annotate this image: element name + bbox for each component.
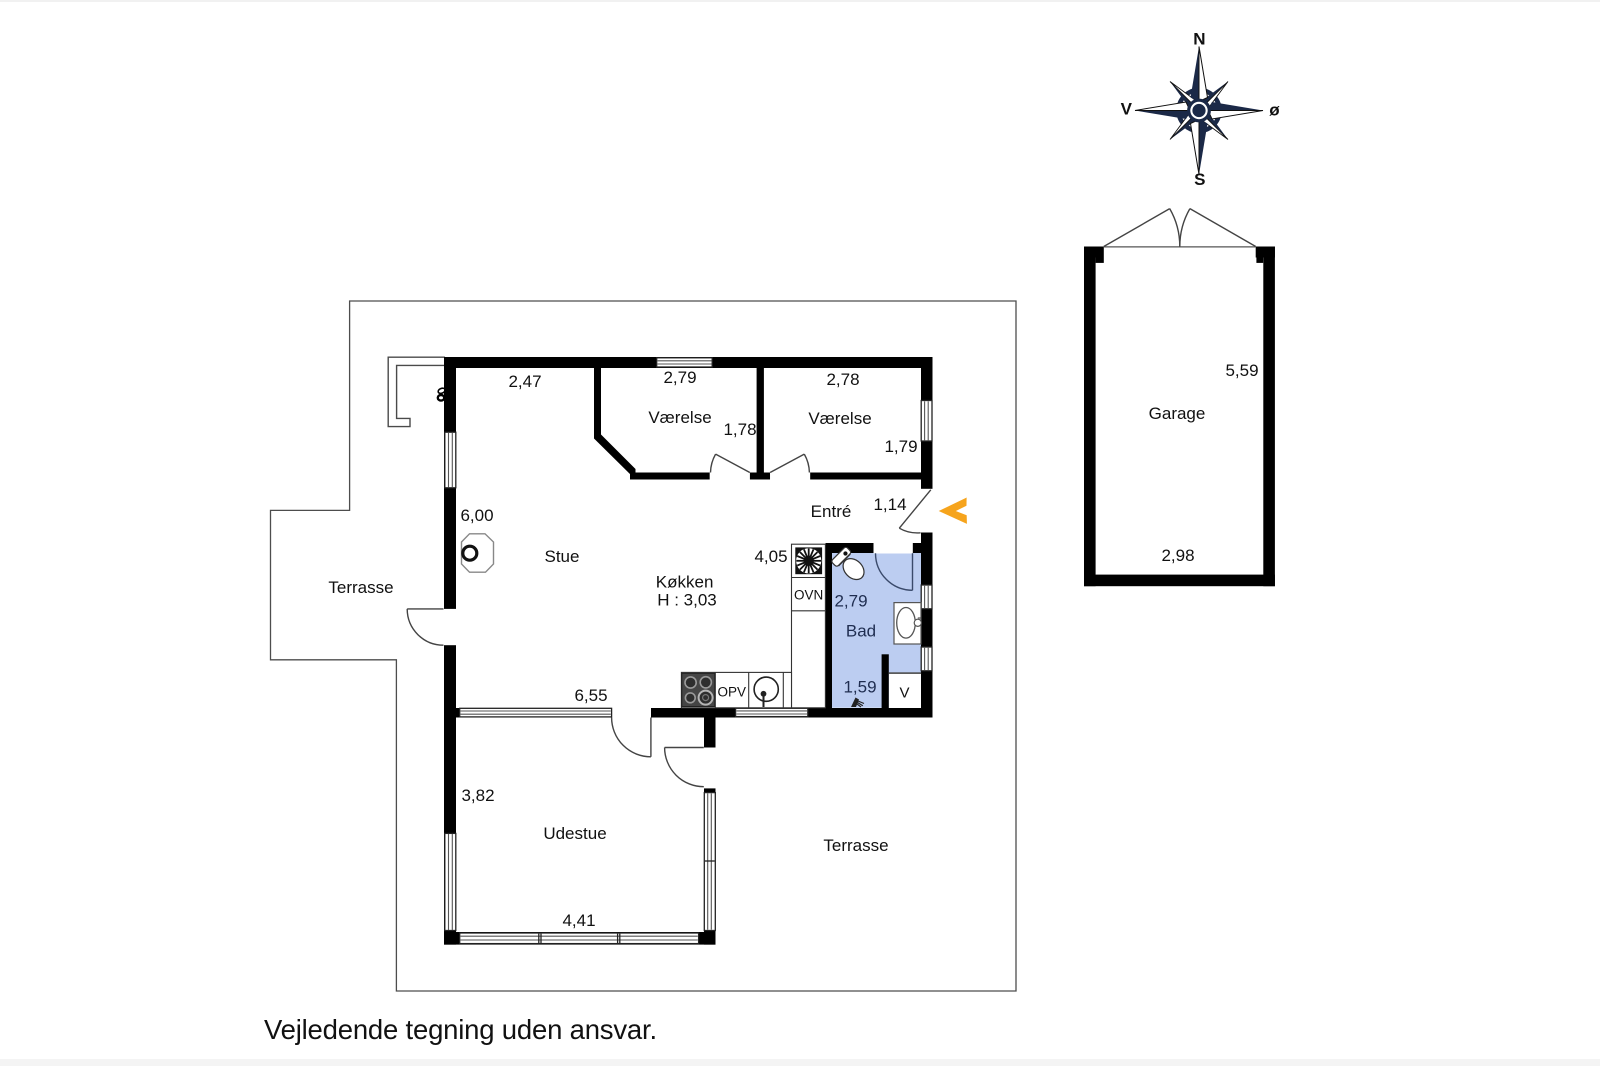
svg-text:V: V	[1121, 100, 1133, 119]
svg-text:OVN: OVN	[794, 588, 823, 603]
svg-text:2,79: 2,79	[834, 592, 867, 611]
svg-text:1,79: 1,79	[884, 437, 917, 456]
svg-text:Entré: Entré	[811, 502, 852, 521]
svg-text:Køkken: Køkken	[656, 573, 714, 592]
svg-text:4,41: 4,41	[562, 911, 595, 930]
svg-text:Værelse: Værelse	[808, 409, 871, 428]
svg-text:S: S	[1194, 170, 1205, 189]
svg-text:OPV: OPV	[718, 685, 747, 700]
svg-text:1,78: 1,78	[723, 420, 756, 439]
svg-text:Værelse: Værelse	[648, 408, 711, 427]
svg-text:6,00: 6,00	[460, 506, 493, 525]
svg-text:Terrasse: Terrasse	[328, 578, 393, 597]
svg-text:Stue: Stue	[545, 547, 580, 566]
svg-text:Udestue: Udestue	[543, 824, 606, 843]
svg-text:2,47: 2,47	[508, 372, 541, 391]
svg-text:4,05: 4,05	[754, 547, 787, 566]
svg-text:3,82: 3,82	[461, 786, 494, 805]
svg-text:Bad: Bad	[846, 622, 876, 641]
svg-text:2,79: 2,79	[663, 368, 696, 387]
svg-text:1,14: 1,14	[873, 495, 906, 514]
svg-text:Vejledende tegning uden ansvar: Vejledende tegning uden ansvar.	[264, 1014, 657, 1045]
svg-text:6,55: 6,55	[574, 686, 607, 705]
svg-text:V: V	[899, 685, 909, 702]
svg-text:N: N	[1193, 30, 1205, 49]
svg-text:1,59: 1,59	[843, 678, 876, 697]
svg-text:Terrasse: Terrasse	[823, 836, 888, 855]
svg-text:Garage: Garage	[1149, 404, 1206, 423]
svg-text:2,78: 2,78	[826, 370, 859, 389]
svg-text:H : 3,03: H : 3,03	[657, 591, 717, 610]
svg-text:ø: ø	[1269, 101, 1280, 120]
svg-text:5,59: 5,59	[1225, 361, 1258, 380]
svg-text:2,98: 2,98	[1161, 546, 1194, 565]
